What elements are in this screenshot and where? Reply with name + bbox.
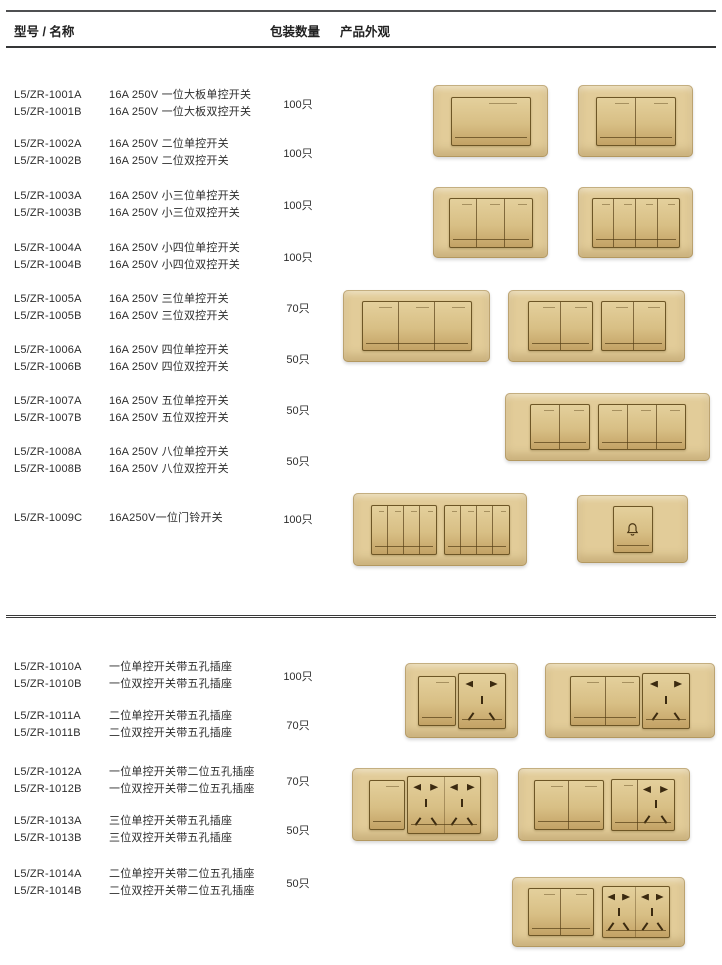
package-qty: 100只	[258, 668, 338, 684]
model-desc: 二位双控开关带五孔插座	[109, 727, 232, 739]
switch-module	[528, 301, 593, 351]
rocker	[571, 677, 605, 725]
switch-module	[592, 198, 680, 248]
model-code: L5/ZR-1001A	[14, 87, 109, 104]
model-code: L5/ZR-1013B	[14, 830, 109, 847]
socket-module	[458, 673, 506, 729]
socket-module	[642, 673, 690, 729]
rocker	[529, 302, 560, 350]
model-code: L5/ZR-1007A	[14, 393, 109, 410]
rocker	[403, 506, 419, 554]
model-code: L5/ZR-1013A	[14, 813, 109, 830]
column-header-package-qty: 包装数量	[270, 21, 320, 40]
column-header-model-name: 型号 / 名称	[14, 21, 74, 40]
table-row: L5/ZR-1003A16A 250V 小三位单控开关 L5/ZR-1003B1…	[14, 188, 358, 222]
switch-module	[369, 780, 405, 830]
rocker	[363, 302, 398, 350]
table-row: L5/ZR-1005A16A 250V 三位单控开关 L5/ZR-1005B16…	[14, 291, 358, 325]
switch-module	[449, 198, 533, 248]
rocker	[597, 98, 636, 145]
rocker	[460, 506, 476, 554]
rocker	[531, 405, 560, 449]
top-rule	[6, 10, 716, 12]
model-code: L5/ZR-1005A	[14, 291, 109, 308]
product-image-five-gang-wide-switch	[505, 393, 710, 461]
model-desc: 16A 250V 八位双控开关	[109, 463, 229, 475]
rocker	[656, 405, 685, 449]
model-code: L5/ZR-1010A	[14, 659, 109, 676]
switch-module	[362, 301, 472, 351]
model-code: L5/ZR-1002B	[14, 153, 109, 170]
product-image-one-switch-five-hole-socket	[405, 663, 518, 738]
model-code: L5/ZR-1010B	[14, 676, 109, 693]
rocker	[504, 199, 532, 247]
switch-module	[418, 676, 456, 726]
package-qty: 100只	[258, 96, 338, 112]
product-image-four-gang-wide-switch	[508, 290, 685, 362]
model-code: L5/ZR-1008A	[14, 444, 109, 461]
five-hole-socket-icon	[643, 674, 689, 728]
model-code: L5/ZR-1014B	[14, 883, 109, 900]
model-code: L5/ZR-1008B	[14, 461, 109, 478]
rocker	[529, 889, 561, 935]
table-row: L5/ZR-1008A16A 250V 八位单控开关 L5/ZR-1008B16…	[14, 444, 358, 478]
model-desc: 16A 250V 五位单控开关	[109, 395, 229, 407]
model-desc: 16A 250V 四位双控开关	[109, 361, 229, 373]
rocker	[492, 506, 508, 554]
model-desc: 16A 250V 八位单控开关	[109, 446, 229, 458]
package-qty: 50只	[258, 822, 338, 838]
rocker	[627, 405, 656, 449]
model-desc: 16A 250V 四位单控开关	[109, 344, 229, 356]
five-hole-socket-icon	[603, 887, 636, 937]
model-desc: 二位单控开关带二位五孔插座	[109, 868, 255, 880]
model-desc: 16A250V一位门铃开关	[109, 512, 223, 524]
switch-socket-module	[611, 779, 675, 831]
product-image-three-gang-wide-switch	[343, 290, 490, 362]
product-image-two-switch-five-hole-socket	[545, 663, 715, 738]
model-code: L5/ZR-1011A	[14, 708, 109, 725]
double-socket-module	[407, 776, 481, 834]
rocker	[633, 302, 665, 350]
rocker	[434, 302, 470, 350]
model-code: L5/ZR-1004A	[14, 240, 109, 257]
switch-module	[596, 97, 676, 146]
model-desc: 二位单控开关带五孔插座	[109, 710, 232, 722]
rocker	[568, 781, 603, 829]
model-code: L5/ZR-1001B	[14, 104, 109, 121]
model-desc: 三位单控开关带五孔插座	[109, 815, 232, 827]
table-row: L5/ZR-1010A一位单控开关带五孔插座 L5/ZR-1010B一位双控开关…	[14, 659, 358, 693]
switch-module	[598, 404, 686, 450]
model-desc: 16A 250V 小四位双控开关	[109, 259, 240, 271]
package-qty: 50只	[258, 351, 338, 367]
model-code: L5/ZR-1006B	[14, 359, 109, 376]
product-image-one-switch-double-five-hole-socket	[352, 768, 498, 841]
switch-module	[530, 404, 590, 450]
rocker	[419, 677, 455, 725]
product-image-three-switch-five-hole-socket	[518, 768, 690, 841]
rocker	[613, 199, 635, 247]
model-code: L5/ZR-1005B	[14, 308, 109, 325]
rocker	[398, 302, 434, 350]
section-divider	[6, 615, 716, 618]
model-desc: 16A 250V 三位单控开关	[109, 293, 229, 305]
five-hole-socket-icon	[459, 674, 505, 728]
rocker	[370, 781, 404, 829]
model-code: L5/ZR-1012B	[14, 781, 109, 798]
model-desc: 16A 250V 小四位单控开关	[109, 242, 240, 254]
product-image-small-three-gang-switch	[433, 187, 548, 258]
product-image-doorbell-switch	[577, 495, 688, 563]
rocker	[445, 506, 460, 554]
rocker	[657, 199, 679, 247]
rocker	[602, 302, 633, 350]
rocker	[593, 199, 614, 247]
model-desc: 16A 250V 小三位单控开关	[109, 190, 240, 202]
rocker	[605, 677, 640, 725]
rocker	[387, 506, 403, 554]
switch-module	[601, 301, 666, 351]
model-desc: 16A 250V 二位双控开关	[109, 155, 229, 167]
product-image-eight-gang-wide-switch	[353, 493, 527, 566]
model-code: L5/ZR-1003A	[14, 188, 109, 205]
switch-module	[570, 676, 640, 726]
switch-module	[451, 97, 531, 146]
rocker	[372, 506, 387, 554]
rocker	[560, 302, 592, 350]
doorbell-icon	[624, 521, 641, 538]
package-qty: 100只	[258, 145, 338, 161]
model-desc: 一位单控开关带五孔插座	[109, 661, 232, 673]
doorbell-module	[613, 506, 653, 553]
table-row: L5/ZR-1013A三位单控开关带五孔插座 L5/ZR-1013B三位双控开关…	[14, 813, 358, 847]
five-hole-socket-icon	[408, 777, 444, 833]
product-image-small-four-gang-switch	[578, 187, 693, 258]
product-image-one-gang-large-switch	[433, 85, 548, 157]
model-code: L5/ZR-1006A	[14, 342, 109, 359]
package-qty: 50只	[258, 402, 338, 418]
model-desc: 三位双控开关带五孔插座	[109, 832, 232, 844]
model-desc: 一位双控开关带五孔插座	[109, 678, 232, 690]
model-code: L5/ZR-1009C	[14, 510, 109, 527]
rocker	[450, 199, 477, 247]
rocker	[560, 889, 593, 935]
table-row: L5/ZR-1002A16A 250V 二位单控开关 L5/ZR-1002B16…	[14, 136, 358, 170]
product-image-two-switch-double-five-hole-socket	[512, 877, 685, 947]
product-image-two-gang-switch	[578, 85, 693, 157]
rocker	[476, 199, 504, 247]
table-row: L5/ZR-1001A16A 250V 一位大板单控开关 L5/ZR-1001B…	[14, 87, 358, 121]
column-header-appearance: 产品外观	[340, 21, 390, 40]
double-socket-module	[602, 886, 670, 938]
rocker	[535, 781, 569, 829]
table-row: L5/ZR-1012A一位单控开关带二位五孔插座 L5/ZR-1012B一位双控…	[14, 764, 358, 798]
model-code: L5/ZR-1002A	[14, 136, 109, 153]
package-qty: 70只	[258, 300, 338, 316]
model-code: L5/ZR-1014A	[14, 866, 109, 883]
table-row: L5/ZR-1014A二位单控开关带二位五孔插座 L5/ZR-1014B二位双控…	[14, 866, 358, 900]
model-code: L5/ZR-1007B	[14, 410, 109, 427]
five-hole-socket-icon	[637, 780, 674, 830]
catalog-page: 型号 / 名称 包装数量 产品外观 L5/ZR-1001A16A 250V 一位…	[0, 0, 722, 965]
table-header: 型号 / 名称 包装数量 产品外观	[0, 21, 722, 39]
rocker	[419, 506, 435, 554]
table-row: L5/ZR-1007A16A 250V 五位单控开关 L5/ZR-1007B16…	[14, 393, 358, 427]
package-qty: 50只	[258, 453, 338, 469]
rocker	[599, 405, 627, 449]
model-desc: 16A 250V 五位双控开关	[109, 412, 229, 424]
five-hole-socket-icon	[444, 777, 481, 833]
table-row: L5/ZR-1011A二位单控开关带五孔插座 L5/ZR-1011B二位双控开关…	[14, 708, 358, 742]
model-code: L5/ZR-1004B	[14, 257, 109, 274]
package-qty: 70只	[258, 717, 338, 733]
model-code: L5/ZR-1003B	[14, 205, 109, 222]
package-qty: 100只	[258, 249, 338, 265]
rocker	[559, 405, 589, 449]
model-desc: 一位单控开关带二位五孔插座	[109, 766, 255, 778]
switch-module	[371, 505, 437, 555]
package-qty: 70只	[258, 773, 338, 789]
model-desc: 16A 250V 一位大板单控开关	[109, 89, 251, 101]
five-hole-socket-icon	[635, 887, 669, 937]
model-desc: 16A 250V 三位双控开关	[109, 310, 229, 322]
table-row: L5/ZR-1004A16A 250V 小四位单控开关 L5/ZR-1004B1…	[14, 240, 358, 274]
rocker	[452, 98, 530, 145]
model-desc: 16A 250V 一位大板双控开关	[109, 106, 251, 118]
model-desc: 一位双控开关带二位五孔插座	[109, 783, 255, 795]
rocker	[635, 199, 657, 247]
rocker	[476, 506, 492, 554]
package-qty: 100只	[258, 197, 338, 213]
rocker	[635, 98, 675, 145]
model-desc: 二位双控开关带二位五孔插座	[109, 885, 255, 897]
header-rule	[6, 46, 716, 48]
model-code: L5/ZR-1012A	[14, 764, 109, 781]
switch-module	[444, 505, 510, 555]
rocker	[612, 780, 637, 830]
model-desc: 16A 250V 小三位双控开关	[109, 207, 240, 219]
table-row: L5/ZR-1009C16A250V一位门铃开关 100只	[14, 510, 358, 527]
package-qty: 50只	[258, 875, 338, 891]
switch-module	[534, 780, 604, 830]
model-desc: 16A 250V 二位单控开关	[109, 138, 229, 150]
table-row: L5/ZR-1006A16A 250V 四位单控开关 L5/ZR-1006B16…	[14, 342, 358, 376]
switch-module	[528, 888, 594, 936]
model-code: L5/ZR-1011B	[14, 725, 109, 742]
package-qty: 100只	[258, 511, 338, 527]
